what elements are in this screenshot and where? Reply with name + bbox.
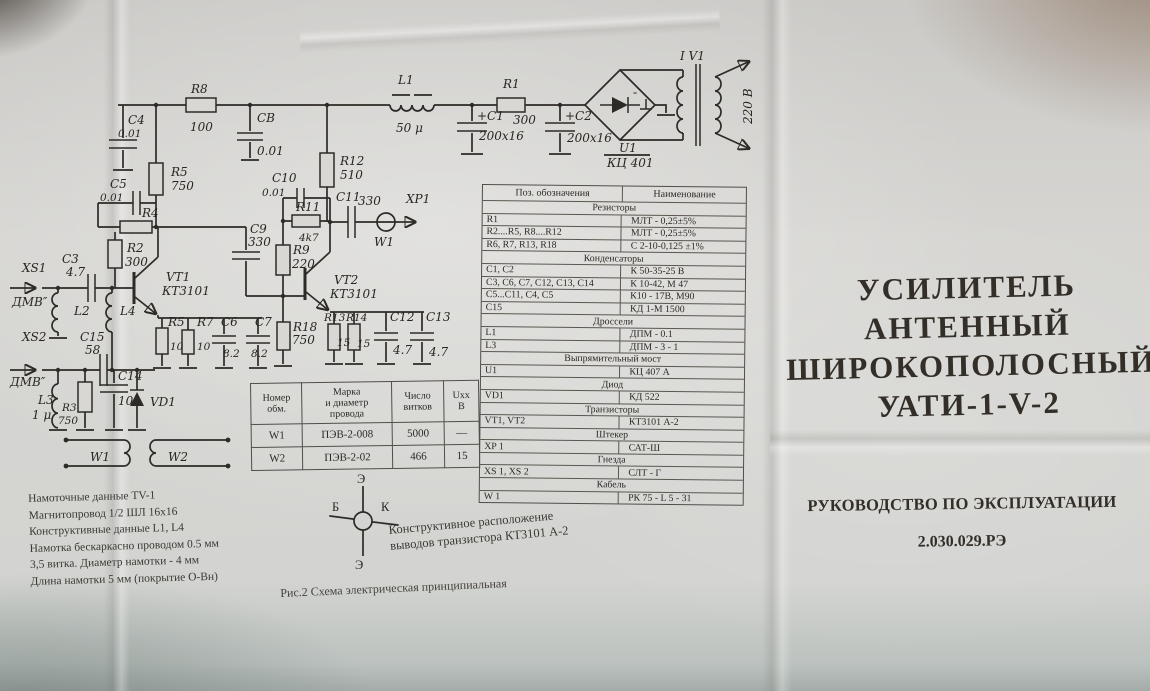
label-l4: L4: [119, 304, 136, 318]
winding-table: Номер обм.Марка и диаметр проводаЧисло в…: [250, 380, 480, 471]
parts-table-designator: C15: [482, 302, 621, 315]
label-c6: C6: [221, 315, 238, 329]
winding-table-header: Номер обм.: [251, 383, 303, 425]
winding-table-cell: 466: [392, 445, 445, 469]
label-r14-v: 15: [357, 338, 371, 350]
resistor-r9: [276, 245, 290, 275]
parts-table-part-name: К 50-35-25 В: [621, 266, 745, 278]
label-l1: L1: [397, 73, 414, 87]
label-c8-v: 0.01: [257, 144, 284, 158]
winding-table-header: Марка и диаметр провода: [302, 382, 392, 424]
label-r7: R7: [196, 315, 214, 329]
label-u1-type: КЦ 401: [606, 156, 653, 170]
label-w1-wind: W1: [90, 450, 110, 464]
resistor-r7: [182, 330, 194, 354]
label-r5a-v: 750: [171, 179, 194, 193]
winding-table-cell: ПЭВ-2-008: [303, 423, 392, 447]
winding-w2-symbol: [150, 438, 230, 469]
label-l3-v: 1 μ: [32, 408, 51, 422]
bridge-rectifier-u1: [585, 70, 655, 140]
parts-table-col2-header: Наименование: [623, 186, 746, 202]
label-c2: +C2: [565, 109, 592, 123]
label-c1: +C1: [477, 109, 504, 123]
parts-table-part-name: КД 522: [620, 392, 744, 404]
label-c11: C11: [336, 190, 360, 204]
capacitor-c9: [232, 252, 260, 259]
label-r14: R14: [345, 312, 367, 324]
title-block: УСИЛИТЕЛЬ АНТЕННЫЙ ШИРОКОПОЛОСНЫЙ УАТИ-1…: [784, 264, 1150, 428]
inductor-l1: [390, 95, 434, 111]
parts-table-section-title: Резисторы: [592, 202, 636, 213]
winding-table-header: Число витков: [391, 381, 444, 423]
label-r11: R11: [295, 200, 320, 214]
label-vt2-type: КТ3101: [329, 287, 378, 301]
parts-table-part-name: С 2-10-0,125 ±1%: [622, 241, 746, 253]
inductor-l2: [52, 293, 58, 332]
label-r18: R18: [292, 320, 318, 334]
label-c10: C10: [272, 171, 297, 185]
capacitor-c5: [133, 191, 140, 215]
label-c14-v: 10: [118, 394, 134, 408]
label-r13: R13: [323, 312, 346, 324]
resistor-r8: [186, 98, 216, 112]
winding-table-cell: W2: [251, 447, 303, 471]
label-w2-wind: W2: [168, 450, 188, 464]
parts-table-part-name: МЛТ - 0,25±5%: [622, 215, 746, 227]
parts-table-designator: XS 1, XS 2: [480, 465, 619, 478]
parts-table-designator: L3: [481, 340, 620, 353]
winding-table-header-row: Номер обм.Марка и диаметр проводаЧисло в…: [251, 380, 480, 424]
parts-table-section-title: Диод: [602, 379, 624, 390]
label-r2-v: 300: [125, 255, 148, 269]
label-xp1: XP1: [405, 192, 430, 206]
parts-table-part-name: СЛТ - Г: [619, 467, 743, 479]
parts-table-designator: VT1, VT2: [480, 415, 619, 428]
label-xs2-port: ДМВ″: [9, 375, 46, 389]
parts-table-section-title: Гнезда: [598, 454, 626, 465]
label-u1: U1: [619, 141, 637, 155]
label-c6-v: 8.2: [223, 348, 240, 360]
capacitor-c6: [212, 336, 236, 343]
winding-table-cell: ПЭВ-2-02: [303, 446, 392, 470]
label-c5: C5: [110, 177, 127, 191]
parts-table: Поз. обозначения Наименование РезисторыR…: [479, 184, 747, 506]
winding-table-header: Uxx В: [444, 380, 479, 421]
label-vt1-type: КТ3101: [161, 284, 210, 298]
capacitor-c7: [246, 336, 270, 343]
resistor-r4: [120, 221, 152, 233]
label-r5b: R5: [167, 315, 185, 329]
label-c1-v: 200x16: [478, 129, 524, 143]
parts-table-part-name: САТ-Ш: [620, 442, 744, 454]
resistor-r11: [292, 215, 320, 227]
parts-table-part-name: МЛТ - 0,25±5%: [622, 228, 746, 240]
title-line-4: УАТИ-1-V-2: [787, 381, 1150, 428]
label-c2-v: 200x16: [566, 131, 612, 145]
capacitor-c2: [545, 123, 575, 131]
resistor-r2: [108, 240, 122, 268]
label-xs1: XS1: [21, 261, 46, 275]
label-c4: C4: [128, 113, 145, 127]
label-c11-v: 330: [358, 194, 381, 208]
label-r1-v: 300: [513, 113, 536, 127]
label-r5b-v: 10: [170, 341, 184, 353]
label-r3-v: 750: [58, 415, 78, 427]
label-r2: R2: [126, 241, 144, 255]
label-r7-v: 10: [197, 341, 211, 353]
label-w1-cable: W1: [374, 235, 394, 249]
resistor-r5-emitter: [156, 328, 168, 354]
winding-table-cell: 5000: [392, 422, 445, 446]
winding-table-cell: —: [444, 421, 479, 444]
capacitor-c14: [100, 385, 128, 392]
parts-table-col1-header: Поз. обозначения: [483, 185, 624, 201]
cable-w1-symbol: [377, 213, 395, 231]
label-r18-v: 750: [292, 333, 315, 347]
parts-table-designator: R1: [483, 214, 622, 227]
parts-table-designator: R6, R7, R13, R18: [482, 239, 621, 252]
parts-table-designator: XP 1: [480, 440, 619, 453]
label-r8-v: 100: [190, 120, 213, 134]
label-c13: C13: [426, 310, 451, 324]
parts-table-designator: U1: [481, 365, 620, 378]
label-r12: R12: [339, 154, 364, 168]
transformer-v1: [677, 62, 748, 148]
label-l3: L3: [37, 393, 54, 407]
parts-table-designator: VD1: [481, 390, 620, 403]
label-xs2: XS2: [21, 330, 46, 344]
label-c12-v: 4.7: [392, 343, 412, 357]
label-r5a: R5: [170, 165, 188, 179]
capacitor-c11: [348, 206, 355, 238]
label-l2: L2: [73, 304, 90, 318]
parts-table-designator: L1: [481, 327, 620, 340]
winding-notes: Намоточные данные TV-1Магнитопровод 1/2 …: [28, 483, 331, 590]
label-c8: CB: [257, 111, 275, 125]
parts-table-section-title: Транзисторы: [585, 404, 639, 416]
label-r9: R9: [292, 243, 310, 257]
label-v220: 220 В: [741, 88, 755, 125]
label-bottom: Э: [355, 558, 363, 572]
label-c7-v: 8.2: [251, 348, 268, 360]
capacitor-c4: [109, 140, 137, 148]
parts-table-part-name: К 10-42, М 47: [621, 278, 745, 290]
label-r4: R4: [141, 206, 159, 220]
parts-table-section-title: Конденсаторы: [584, 253, 644, 265]
label-c3: C3: [62, 252, 79, 266]
label-c5-v: 0.01: [100, 192, 123, 204]
label-c9-v: 330: [248, 235, 271, 249]
label-c9: C9: [250, 222, 267, 236]
label-xs1-port: ДМВ″: [11, 295, 48, 309]
label-r12-v: 510: [340, 168, 363, 182]
parts-table-designator: C3, C6, C7, C12, C13, C14: [482, 277, 621, 290]
label-c4-v: 0.01: [118, 128, 141, 140]
label-r9-v: 220: [291, 257, 315, 271]
title-line-3: ШИРОКОПОЛОСНЫЙ: [786, 342, 1150, 389]
parts-table-section-title: Выпрямительный мост: [564, 353, 661, 365]
label-c7: C7: [255, 315, 272, 329]
label-top: Э: [357, 472, 365, 486]
label-c12: C12: [390, 310, 414, 324]
label-v1: I V1: [679, 49, 705, 63]
capacitor-c8: [237, 133, 263, 140]
parts-table-designator: W 1: [480, 491, 619, 504]
capacitor-c12: [374, 333, 398, 340]
label-vt2: VT2: [334, 273, 358, 287]
resistor-r18: [277, 322, 290, 350]
label-c3-v: 4.7: [65, 265, 85, 279]
label-c13-v: 4.7: [428, 345, 448, 359]
parts-table-part-name: ДПМ - 0.1: [621, 329, 745, 341]
resistor-r12: [320, 153, 334, 187]
parts-table-part-name: КЦ 407 А: [620, 366, 744, 378]
parts-table-part-name: ДПМ - 3 - 1: [621, 341, 745, 353]
winding-table-row: W2ПЭВ-2-0246615: [251, 444, 479, 470]
label-r1: R1: [502, 77, 520, 91]
resistor-r5: [149, 163, 163, 195]
label-c15: C15: [80, 330, 104, 344]
parts-table-designator: C5...C11, C4, C5: [482, 289, 621, 302]
winding-table-cell: W1: [251, 424, 303, 448]
parts-table-section-title: Штекер: [596, 429, 628, 440]
parts-table-designator: R2....R5, R8....R12: [482, 226, 621, 239]
label-right: К: [381, 500, 390, 514]
label-vt1: VT1: [166, 270, 190, 284]
parts-table-part-name: КД 1-М 1500: [621, 304, 745, 316]
capacitor-c15: [100, 354, 107, 386]
label-r8: R8: [190, 82, 208, 96]
label-minus: -: [633, 85, 637, 99]
resistor-r3: [78, 382, 92, 412]
parts-table-section-title: Кабель: [597, 480, 626, 491]
label-left: Б: [332, 500, 339, 514]
capacitor-c13: [410, 333, 434, 340]
label-r13-v: 15: [337, 337, 351, 349]
parts-table-designator: C1, C2: [482, 264, 621, 277]
label-c14: C14: [118, 369, 142, 383]
parts-table-part-name: К10 - 17В, М90: [621, 291, 745, 303]
label-c10-v: 0.01: [262, 187, 285, 199]
inductor-l4: [106, 293, 112, 332]
label-l1-v: 50 μ: [396, 121, 423, 135]
label-r3: R3: [61, 402, 77, 414]
winding-table-row: W1ПЭВ-2-0085000—: [251, 421, 479, 447]
capacitor-c3: [88, 274, 95, 302]
parts-table-part-name: КТ3101 А-2: [620, 417, 744, 429]
label-c15-v: 58: [85, 343, 101, 357]
parts-table-section-title: Дроссели: [593, 316, 633, 327]
label-vd1: VD1: [150, 395, 176, 409]
winding-table-cell: 15: [445, 444, 480, 467]
